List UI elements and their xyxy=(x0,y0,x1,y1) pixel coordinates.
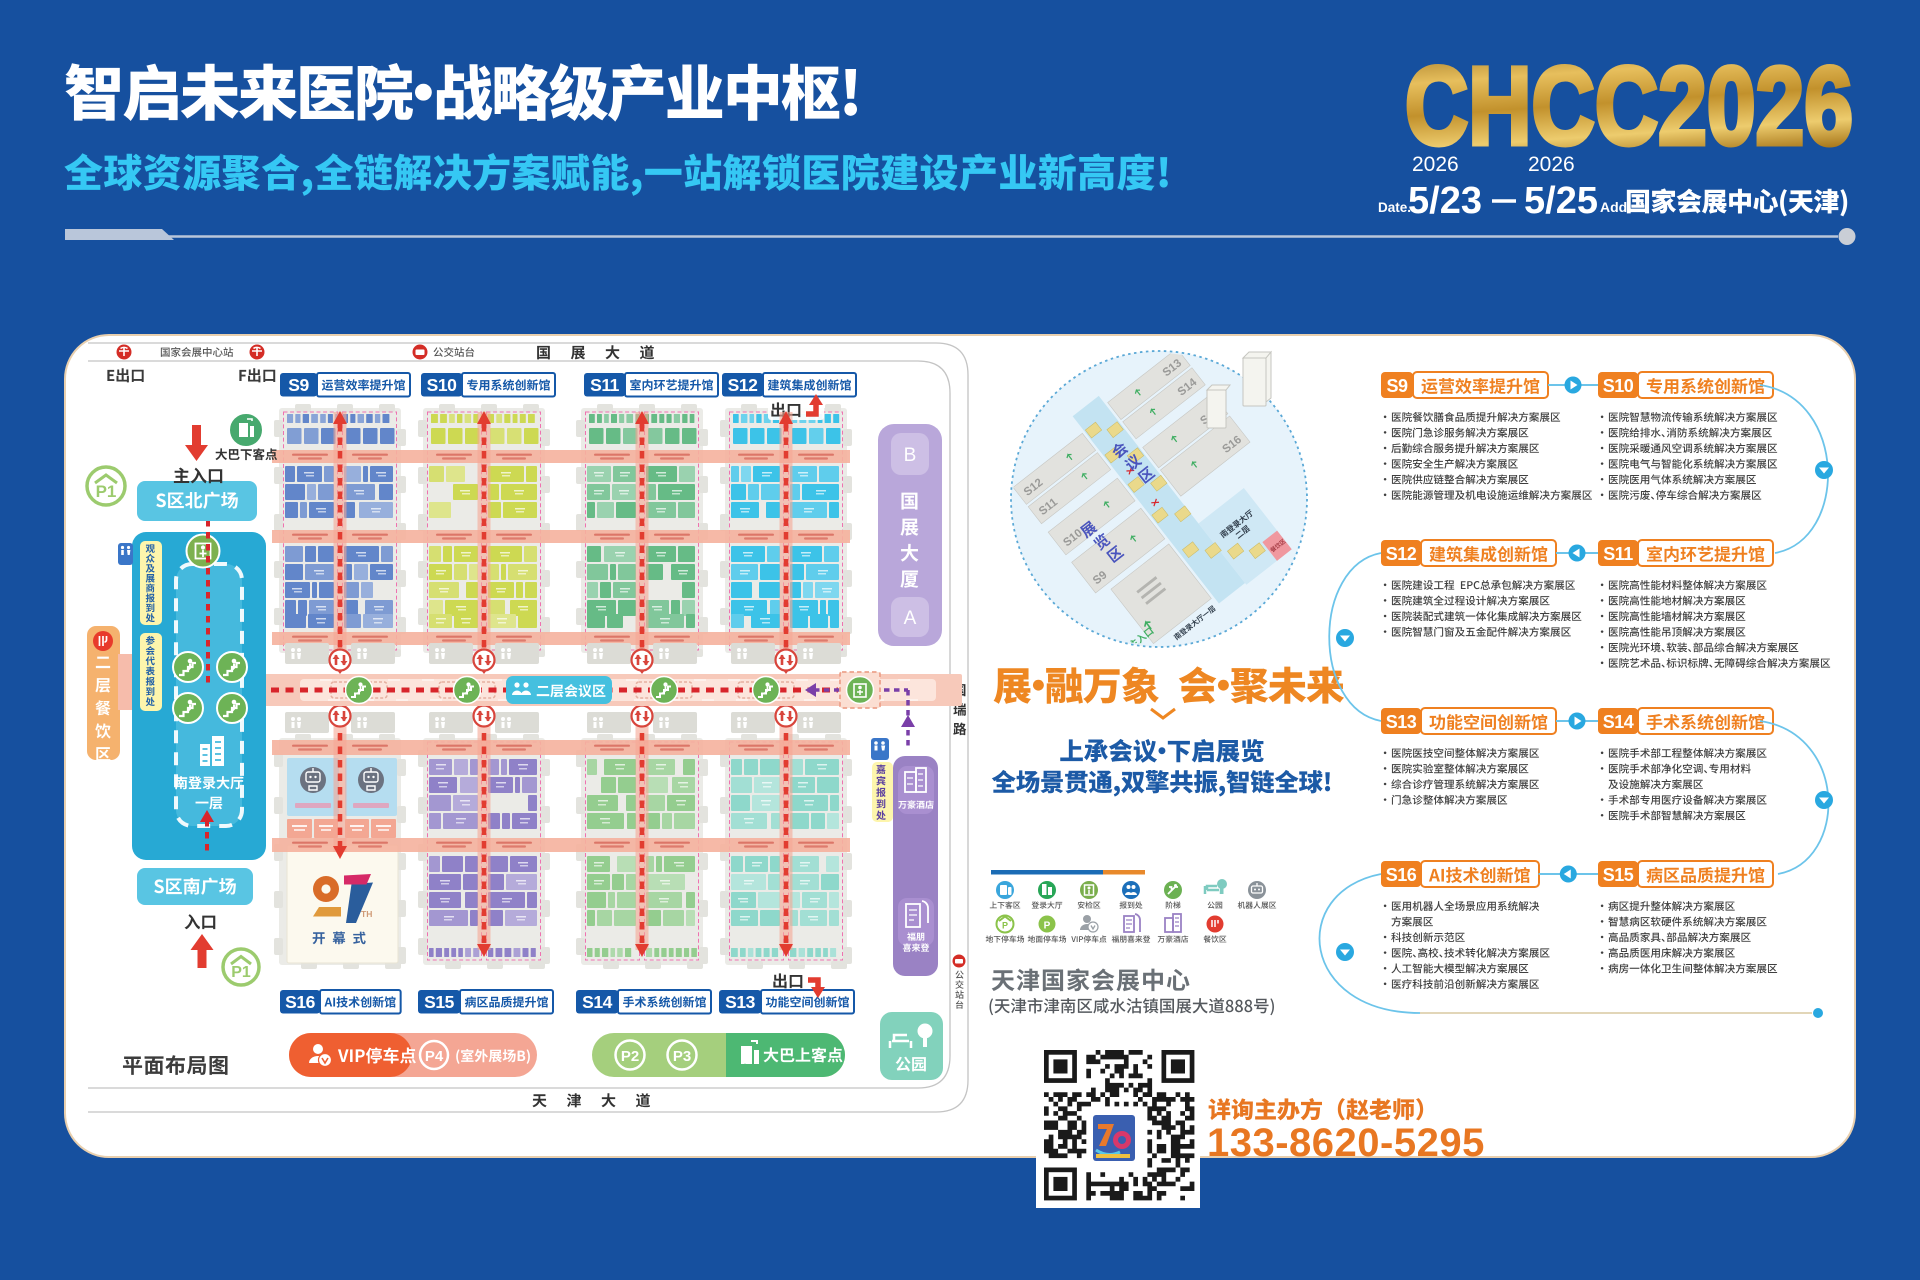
svg-text:P: P xyxy=(1002,921,1008,931)
svg-text:5/23: 5/23 xyxy=(1408,180,1482,222)
svg-text:P1: P1 xyxy=(231,964,251,981)
svg-text:S12: S12 xyxy=(728,375,758,395)
svg-text:Add.: Add. xyxy=(1600,199,1631,215)
svg-text:S15: S15 xyxy=(1603,865,1634,885)
svg-text:133-8620-5295: 133-8620-5295 xyxy=(1207,1121,1485,1165)
svg-text:S9: S9 xyxy=(1386,376,1408,396)
svg-text:S12: S12 xyxy=(1386,544,1417,564)
svg-text:B: B xyxy=(904,445,917,466)
svg-text:P: P xyxy=(1044,921,1051,932)
svg-text:P3: P3 xyxy=(673,1048,691,1065)
svg-text:S9: S9 xyxy=(288,375,309,395)
svg-text:P1: P1 xyxy=(96,482,117,501)
svg-text:S13: S13 xyxy=(1386,712,1417,732)
svg-text:P2: P2 xyxy=(621,1048,639,1065)
svg-text:S10: S10 xyxy=(427,375,457,395)
svg-text:2026: 2026 xyxy=(1528,153,1575,176)
svg-text:S14: S14 xyxy=(582,992,612,1012)
svg-text:S14: S14 xyxy=(1603,712,1634,732)
svg-text:S16: S16 xyxy=(285,992,315,1012)
svg-text:S11: S11 xyxy=(590,375,619,395)
svg-text:S16: S16 xyxy=(1386,865,1417,885)
svg-text:2026: 2026 xyxy=(1412,153,1459,176)
svg-text:S11: S11 xyxy=(1603,544,1633,564)
svg-text:5/25: 5/25 xyxy=(1524,180,1598,222)
svg-text:S10: S10 xyxy=(1603,376,1634,396)
svg-text:TH: TH xyxy=(361,909,372,919)
svg-text:Date.: Date. xyxy=(1378,200,1411,215)
svg-text:A: A xyxy=(904,608,917,629)
svg-text:CHCC2026: CHCC2026 xyxy=(1405,45,1853,168)
svg-text:P4: P4 xyxy=(425,1048,444,1065)
svg-text:S15: S15 xyxy=(424,992,454,1012)
svg-text:S13: S13 xyxy=(725,992,755,1012)
